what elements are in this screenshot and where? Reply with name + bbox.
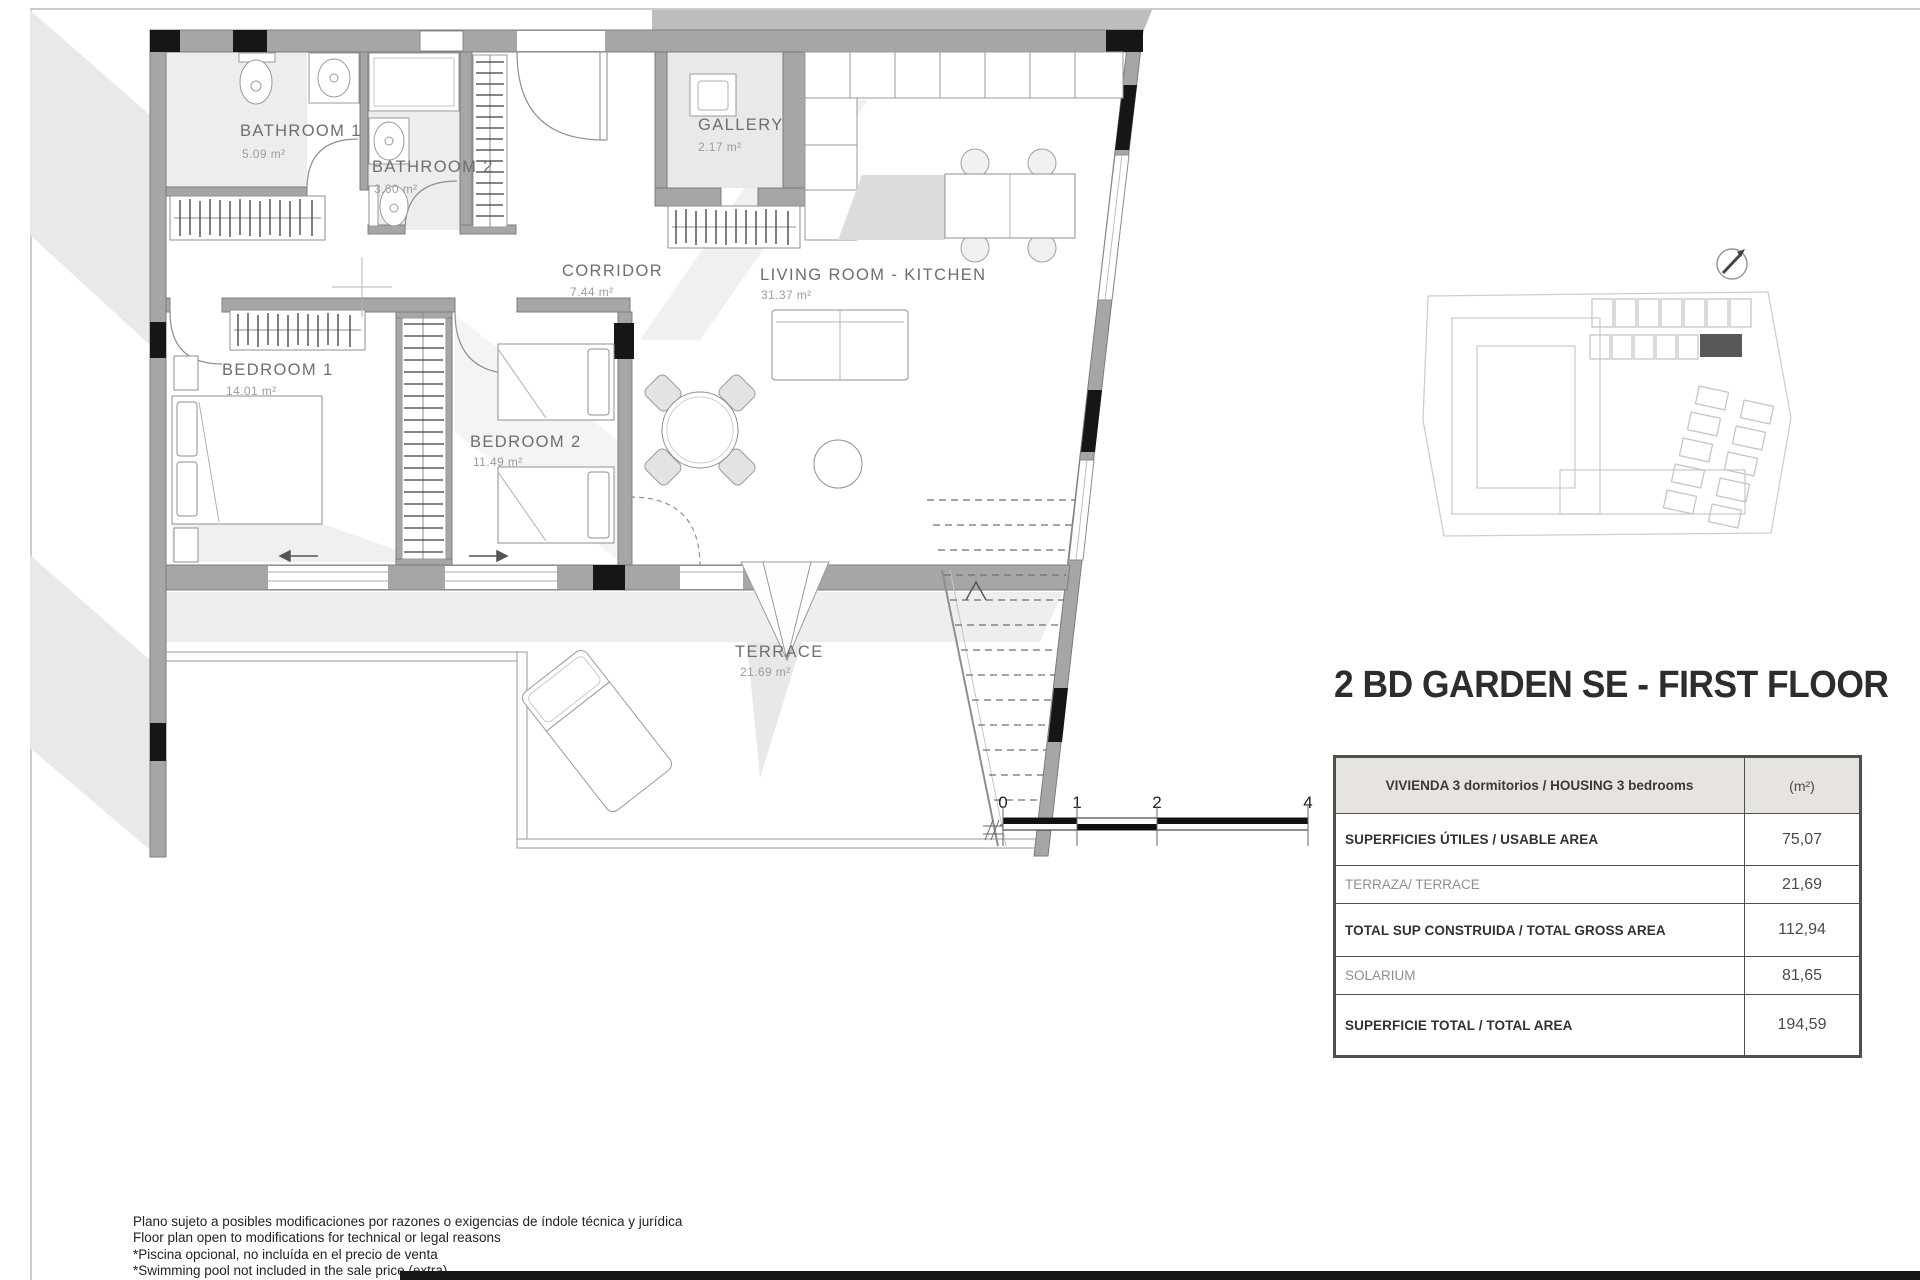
- washing-machine: [690, 74, 736, 116]
- row-value: 112,94: [1745, 904, 1861, 957]
- row-label: SUPERFICIE TOTAL / TOTAL AREA: [1335, 995, 1745, 1057]
- floor-plan-drawing: BATHROOM 1 5.09 m² BATHROOM 2 3.60 m² GA…: [0, 0, 1920, 1280]
- room-area-bathroom-2: 3.60 m²: [374, 182, 417, 196]
- row-label: SUPERFICIES ÚTILES / USABLE AREA: [1335, 814, 1745, 866]
- room-label-terrace: TERRACE: [735, 643, 824, 661]
- room-area-gallery: 2.17 m²: [698, 140, 741, 154]
- row-value: 194,59: [1745, 995, 1861, 1057]
- table-row-gross-area: TOTAL SUP CONSTRUIDA / TOTAL GROSS AREA …: [1335, 904, 1861, 957]
- room-label-gallery: GALLERY: [698, 116, 784, 134]
- area-table-header-label: VIVIENDA 3 dormitorios / HOUSING 3 bedro…: [1335, 757, 1745, 814]
- disclaimer-line-2: Floor plan open to modifications for tec…: [133, 1230, 682, 1246]
- area-table-header-row: VIVIENDA 3 dormitorios / HOUSING 3 bedro…: [1335, 757, 1861, 814]
- area-table-header-unit: (m²): [1745, 757, 1861, 814]
- room-label-corridor: CORRIDOR: [562, 262, 663, 280]
- room-label-bedroom-2: BEDROOM 2: [470, 433, 582, 451]
- table-row-total-area: SUPERFICIE TOTAL / TOTAL AREA 194,59: [1335, 995, 1861, 1057]
- row-label: SOLARIUM: [1335, 957, 1745, 995]
- sofa: [772, 310, 908, 380]
- compass-icon: [1717, 249, 1747, 279]
- room-area-bathroom-1: 5.09 m²: [242, 147, 285, 161]
- highlighted-unit: [1700, 334, 1742, 357]
- disclaimer: Plano sujeto a posibles modificaciones p…: [133, 1214, 682, 1279]
- area-table: VIVIENDA 3 dormitorios / HOUSING 3 bedro…: [1333, 755, 1862, 1058]
- room-area-living-room-kitchen: 31.37 m²: [761, 288, 812, 302]
- row-value: 75,07: [1745, 814, 1861, 866]
- floor-plan-page: BATHROOM 1 5.09 m² BATHROOM 2 3.60 m² GA…: [0, 0, 1920, 1280]
- room-area-bedroom-2: 11.49 m²: [473, 455, 523, 469]
- row-value: 21,69: [1745, 866, 1861, 904]
- table-row-terrace: TERRAZA/ TERRACE 21,69: [1335, 866, 1861, 904]
- disclaimer-line-3: *Piscina opcional, no incluída en el pre…: [133, 1247, 682, 1263]
- site-plan-map: [1423, 292, 1791, 536]
- room-area-corridor: 7.44 m²: [570, 285, 613, 299]
- room-label-bathroom-1: BATHROOM 1: [240, 122, 362, 140]
- room-label-bathroom-2: BATHROOM 2: [372, 158, 494, 176]
- plan-title: 2 BD GARDEN SE - FIRST FLOOR: [1334, 664, 1920, 707]
- row-label: TOTAL SUP CONSTRUIDA / TOTAL GROSS AREA: [1335, 904, 1745, 957]
- room-area-bedroom-1: 14.01 m²: [226, 384, 277, 398]
- row-label: TERRAZA/ TERRACE: [1335, 866, 1745, 904]
- title-block-top-border: [400, 1271, 1920, 1280]
- row-value: 81,65: [1745, 957, 1861, 995]
- room-label-bedroom-1: BEDROOM 1: [222, 361, 334, 379]
- disclaimer-line-1: Plano sujeto a posibles modificaciones p…: [133, 1214, 682, 1230]
- room-area-terrace: 21.69 m²: [740, 665, 791, 679]
- pouf: [814, 440, 862, 488]
- table-row-usable-area: SUPERFICIES ÚTILES / USABLE AREA 75,07: [1335, 814, 1861, 866]
- table-row-solarium: SOLARIUM 81,65: [1335, 957, 1861, 995]
- plan-title-text: 2 BD GARDEN SE - FIRST FLOOR: [1334, 664, 1888, 707]
- room-label-living-room-kitchen: LIVING ROOM - KITCHEN: [760, 266, 987, 284]
